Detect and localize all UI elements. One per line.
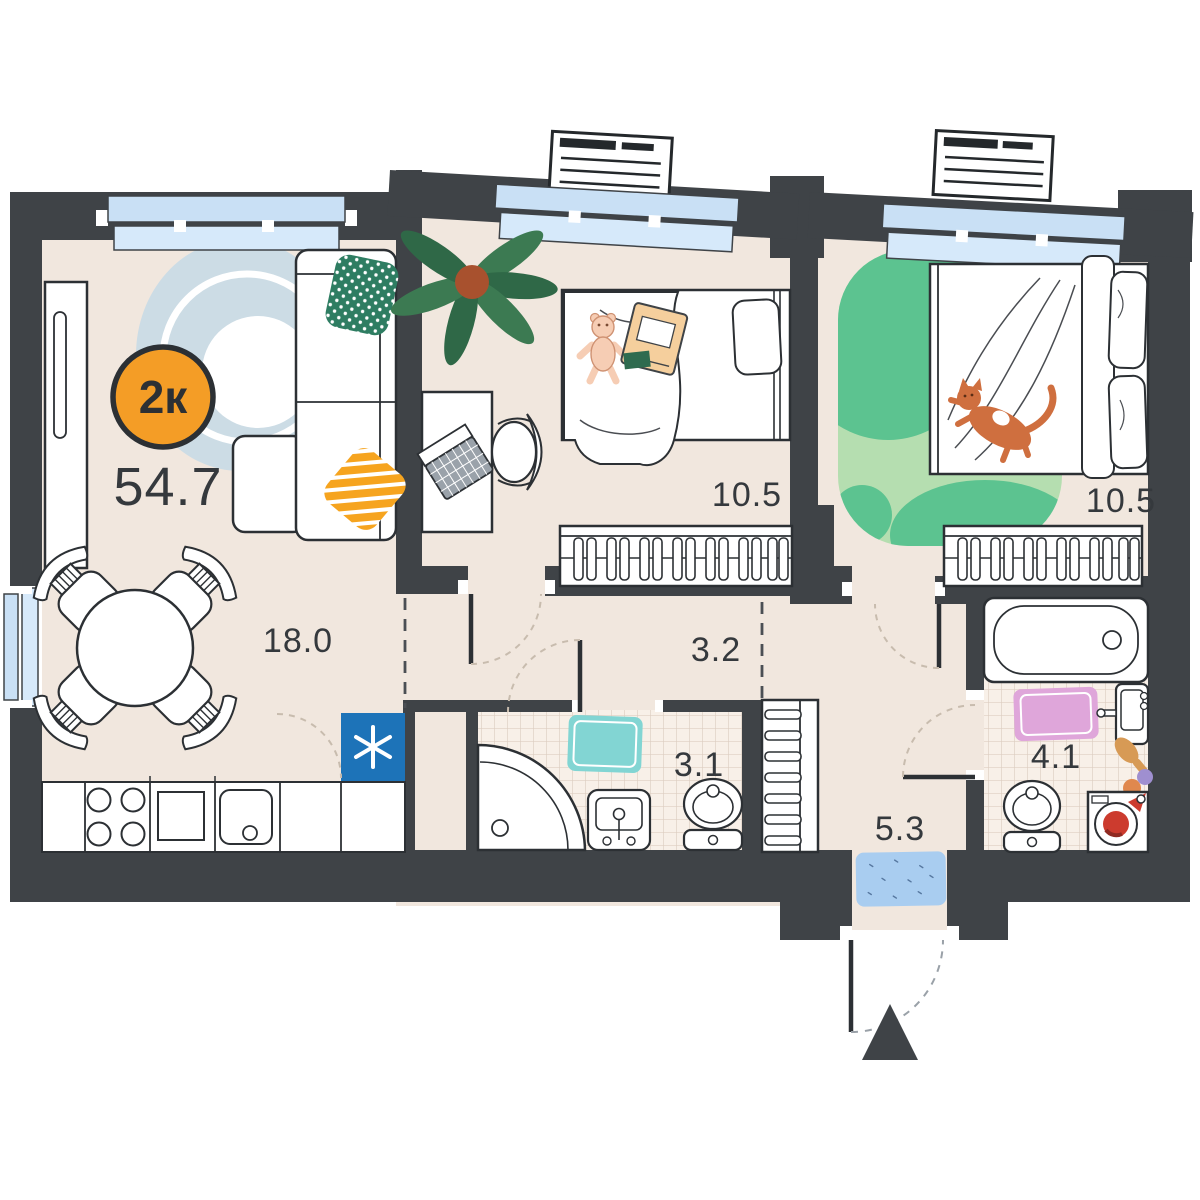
oven-icon	[158, 792, 204, 840]
wall-right	[1148, 236, 1190, 902]
wall-bottom-left	[10, 850, 810, 902]
toilet	[1004, 781, 1060, 852]
toilet	[684, 779, 742, 850]
wardrobe-hall	[762, 700, 818, 852]
bath-mat-pink	[1013, 687, 1099, 742]
duvet-fold	[1082, 256, 1114, 478]
room-area-hallway: 5.3	[875, 810, 925, 848]
bed-single	[562, 290, 790, 465]
wardrobe-children	[560, 526, 792, 586]
floorplan-canvas: 2к 54.7 18.0 10.5 10.5 3.2 3.1 5.3 4.1	[0, 0, 1200, 1200]
tv-icon	[54, 312, 66, 438]
washbasin	[588, 790, 650, 850]
room-area-bathroom-small: 3.1	[674, 746, 724, 784]
room-area-children: 10.5	[712, 476, 782, 514]
room-area-bedroom: 10.5	[1086, 482, 1156, 520]
bookmark	[623, 351, 651, 370]
bathtub	[984, 598, 1148, 682]
doormat	[856, 851, 947, 907]
room-area-corridor: 3.2	[691, 631, 741, 669]
tv-console	[45, 282, 87, 568]
pillow	[1108, 271, 1147, 368]
window-living-left	[2, 586, 42, 708]
bed-double	[930, 256, 1148, 478]
wall-left	[10, 192, 42, 902]
total-area-label: 54.7	[113, 457, 222, 517]
wall-shaft-right	[466, 700, 478, 852]
room-area-living: 18.0	[263, 622, 333, 660]
bath-mat-teal	[567, 715, 643, 774]
entrance-arrow-icon	[862, 1004, 918, 1060]
wardrobe-bedroom	[944, 526, 1142, 586]
pillow	[732, 299, 782, 375]
pillow	[1108, 375, 1147, 468]
floorplan-svg: 2к 54.7 18.0 10.5 10.5 3.2 3.1 5.3 4.1	[0, 0, 1200, 1200]
apartment-type-label: 2к	[139, 371, 189, 423]
room-area-bathroom-large: 4.1	[1031, 738, 1081, 776]
washing-machine	[1088, 792, 1148, 852]
dining-table	[77, 590, 193, 706]
